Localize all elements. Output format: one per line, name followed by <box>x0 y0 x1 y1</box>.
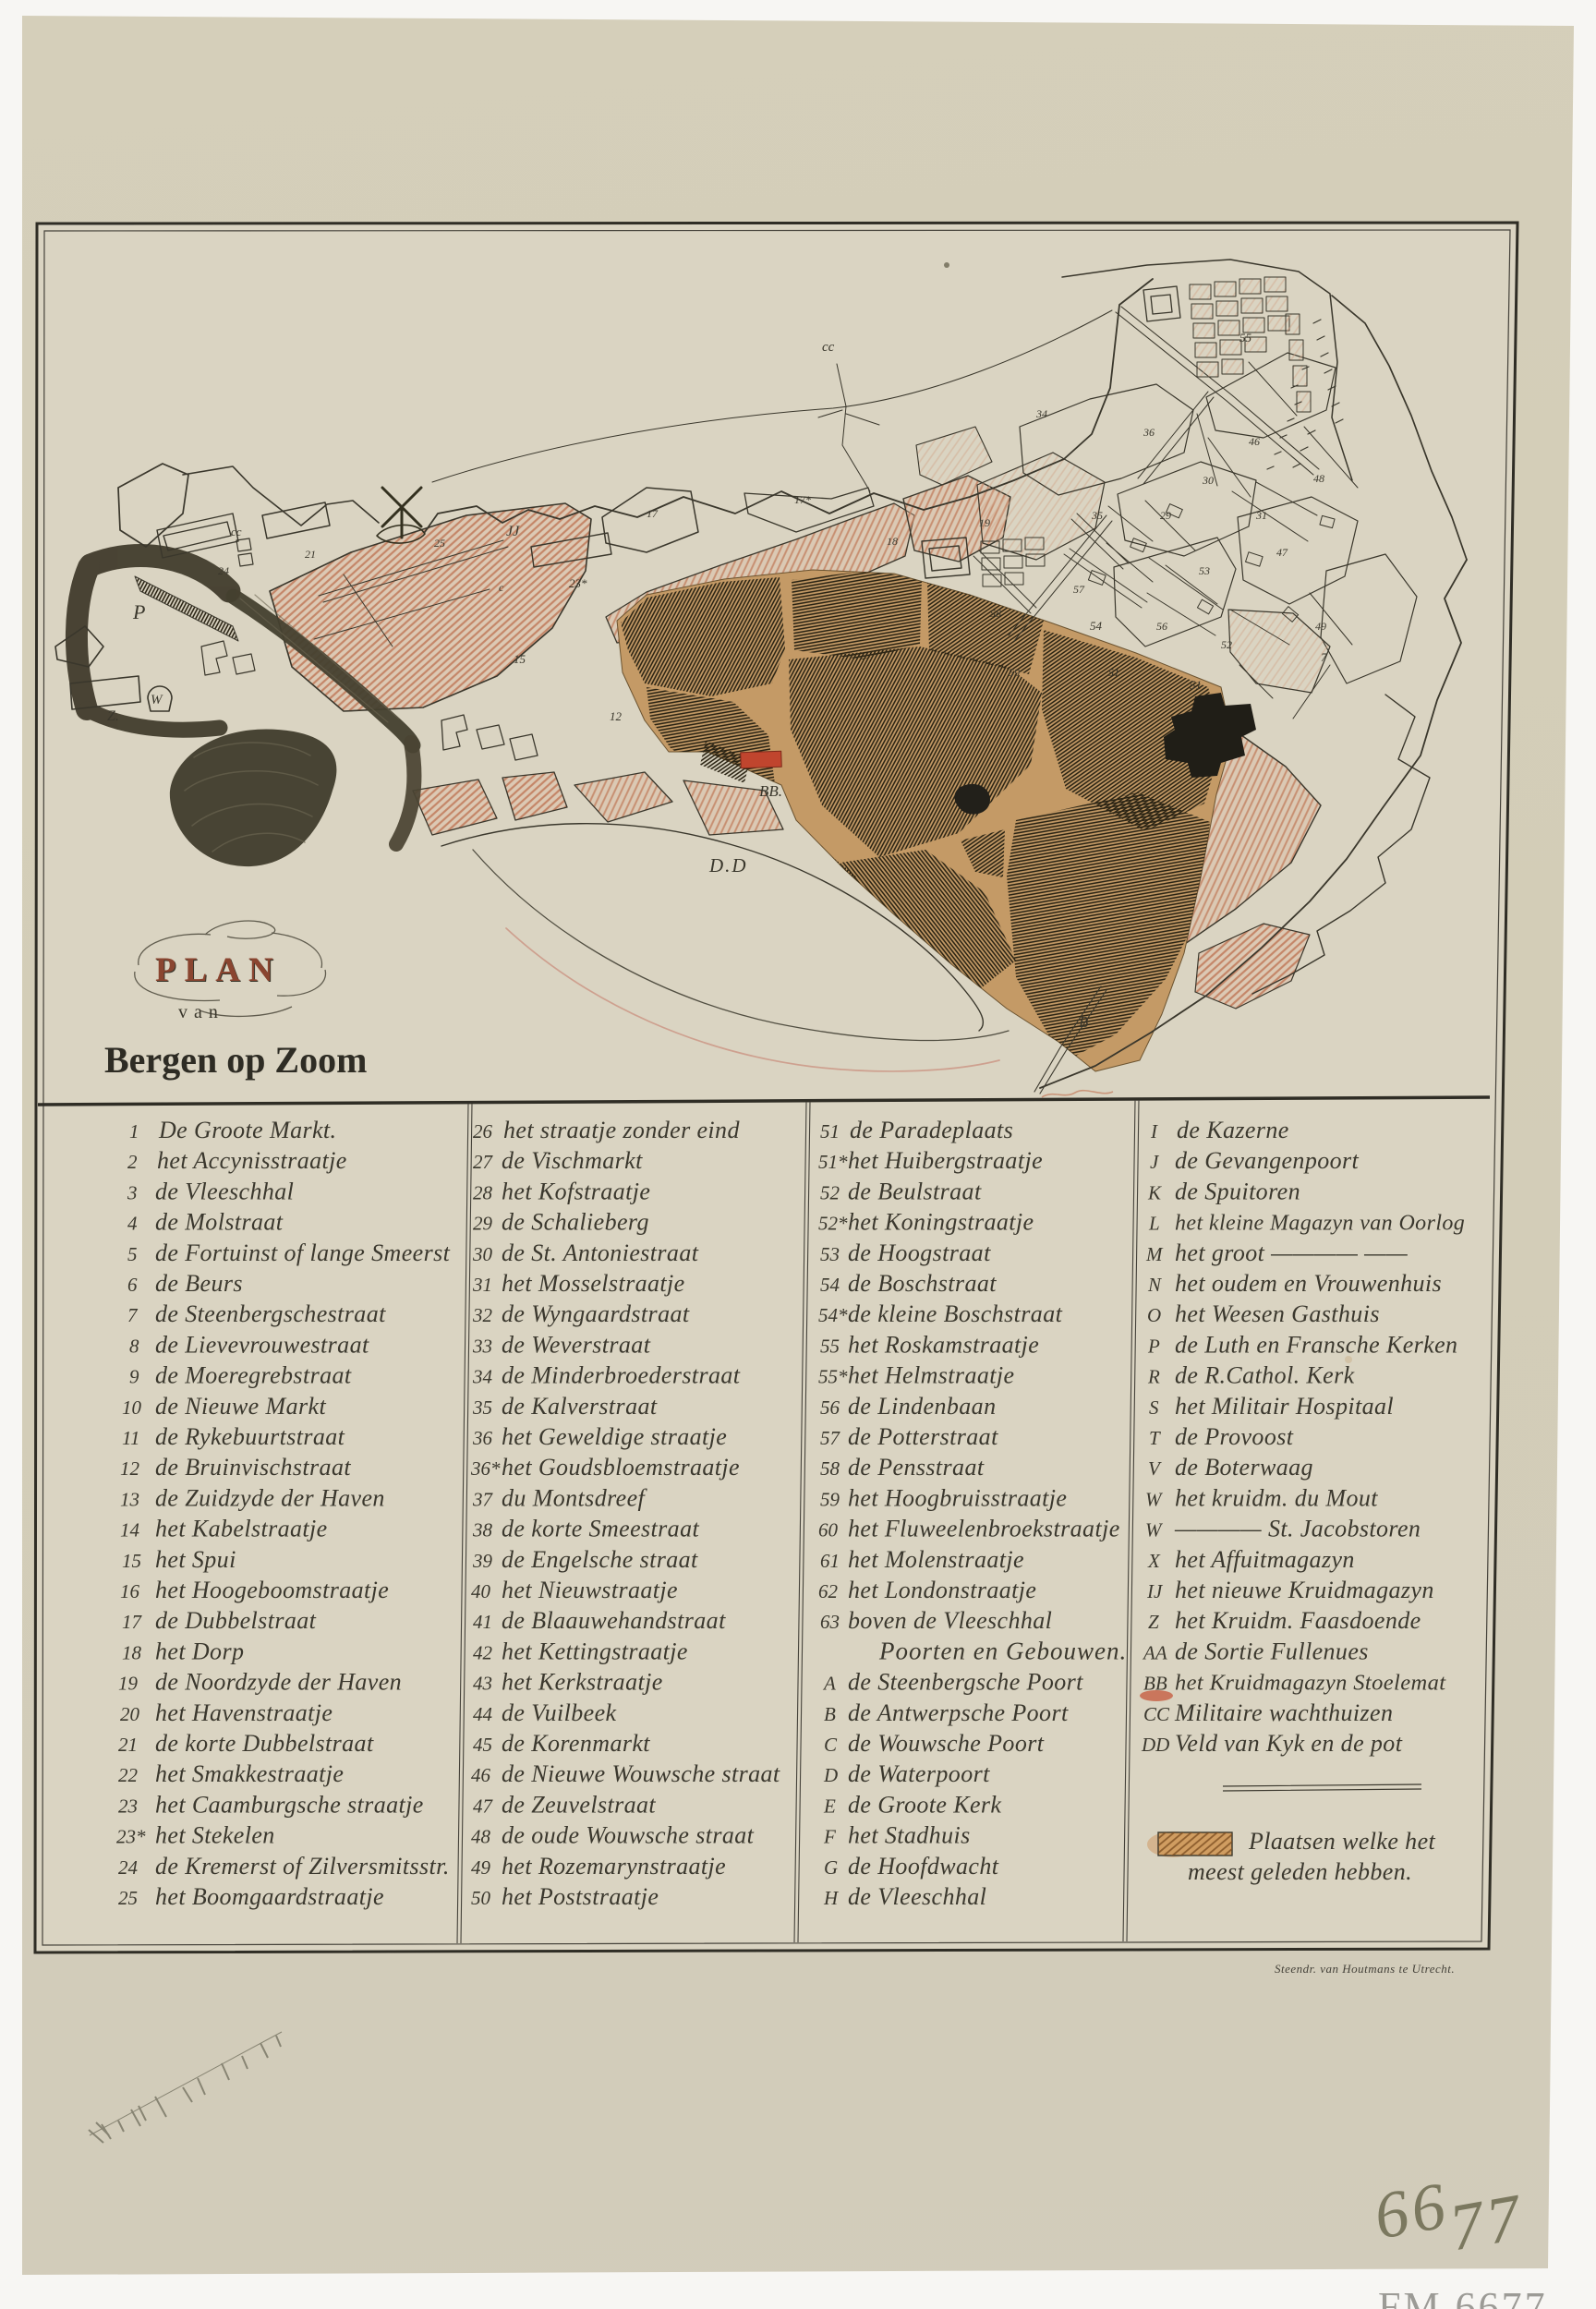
svg-text:36: 36 <box>1143 426 1155 439</box>
svg-text:19: 19 <box>979 516 990 529</box>
svg-text:18: 18 <box>887 535 898 548</box>
svg-text:BB.: BB. <box>759 782 782 800</box>
svg-text:cc: cc <box>231 525 242 538</box>
svg-text:34: 34 <box>1035 407 1047 420</box>
svg-text:51: 51 <box>1108 666 1119 679</box>
svg-text:P: P <box>132 600 145 623</box>
svg-text:55: 55 <box>1239 331 1252 345</box>
svg-text:30: 30 <box>1202 474 1214 487</box>
svg-text:77: 77 <box>1444 2180 1529 2266</box>
svg-text:52: 52 <box>1221 638 1232 651</box>
svg-text:21: 21 <box>305 548 316 561</box>
svg-text:PLAN: PLAN <box>155 951 282 989</box>
svg-text:D.D: D.D <box>708 854 748 876</box>
svg-text:Bergen op Zoom: Bergen op Zoom <box>104 1039 367 1081</box>
svg-text:25: 25 <box>434 537 445 550</box>
svg-text:58: 58 <box>990 607 1001 620</box>
svg-text:12: 12 <box>610 709 623 723</box>
svg-text:48: 48 <box>1313 472 1324 485</box>
svg-text:53: 53 <box>1199 564 1210 577</box>
svg-text:Plaatsen welke het: Plaatsen welke het <box>1248 1828 1436 1855</box>
svg-text:24: 24 <box>218 564 229 577</box>
svg-text:47: 47 <box>1276 546 1288 559</box>
svg-text:7: 7 <box>1321 650 1327 664</box>
svg-text:49: 49 <box>1315 620 1326 633</box>
svg-text:B: B <box>1079 1013 1089 1031</box>
svg-text:van: van <box>178 1002 224 1022</box>
svg-text:23*: 23* <box>569 576 587 590</box>
svg-text:46: 46 <box>1249 435 1260 448</box>
svg-text:15: 15 <box>514 652 526 666</box>
svg-text:meest geleden hebben.: meest geleden hebben. <box>1188 1858 1412 1885</box>
svg-text:57: 57 <box>1073 583 1085 596</box>
svg-text:31: 31 <box>1255 509 1267 522</box>
svg-text:Steendr. van Houtmans te Utrec: Steendr. van Houtmans te Utrecht. <box>1275 1962 1455 1976</box>
svg-text:29: 29 <box>1160 509 1171 522</box>
svg-text:FM 6677: FM 6677 <box>1378 2284 1548 2309</box>
svg-text:cc: cc <box>822 340 835 355</box>
svg-text:35: 35 <box>1091 509 1103 522</box>
svg-text:54: 54 <box>1090 619 1103 633</box>
svg-text:17*: 17* <box>794 493 811 506</box>
svg-text:W: W <box>151 693 163 707</box>
svg-text:Z.: Z. <box>107 708 119 724</box>
svg-text:c: c <box>499 581 504 594</box>
svg-text:51: 51 <box>1190 678 1202 692</box>
svg-text:59: 59 <box>1009 666 1020 679</box>
svg-text:66: 66 <box>1369 2168 1455 2254</box>
svg-text:56: 56 <box>1156 620 1167 633</box>
svg-text:17: 17 <box>647 507 659 520</box>
svg-text:JJ: JJ <box>506 524 520 539</box>
